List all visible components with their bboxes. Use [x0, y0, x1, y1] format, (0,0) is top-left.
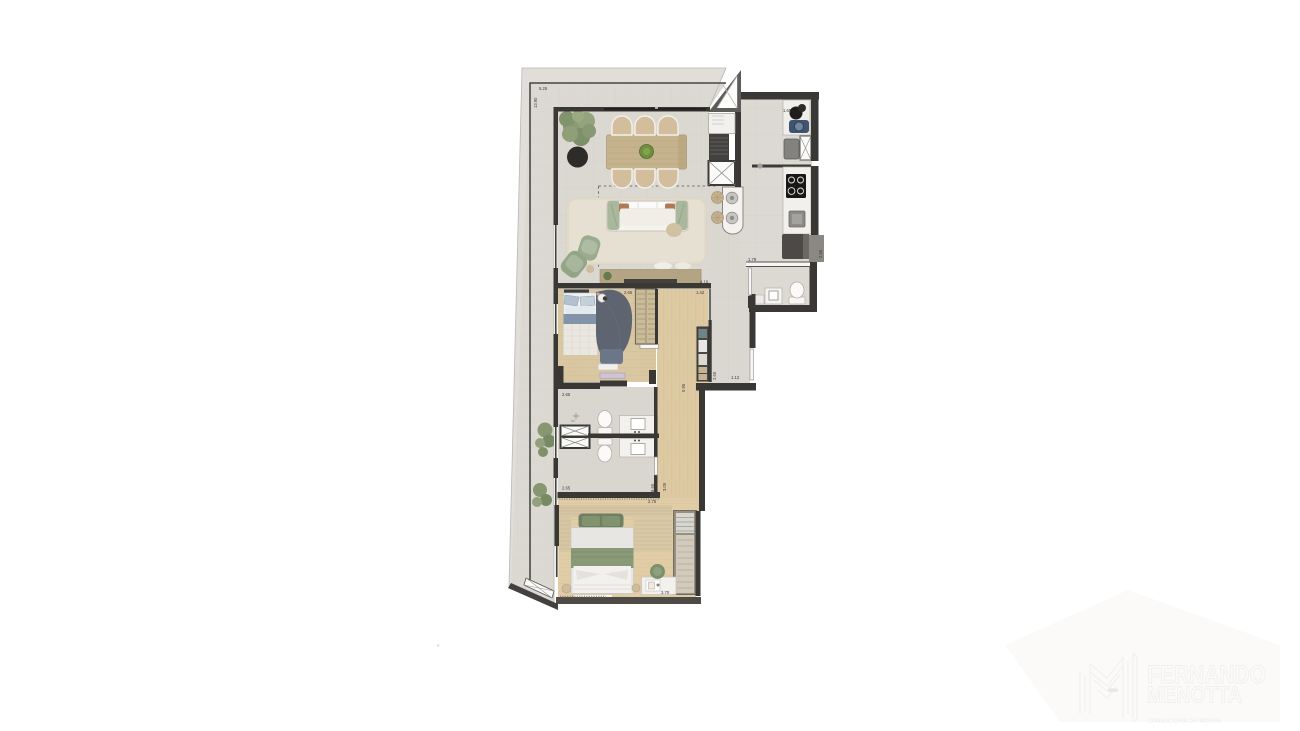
svg-text:2.65: 2.65: [624, 290, 633, 295]
svg-text:2.75: 2.75: [648, 499, 657, 504]
svg-text:13.90: 13.90: [533, 97, 538, 108]
svg-text:CONSULTORIA DE IMOVEIS: CONSULTORIA DE IMOVEIS: [1148, 719, 1221, 725]
svg-text:1.79: 1.79: [748, 257, 757, 262]
svg-text:2.65: 2.65: [712, 371, 717, 380]
svg-text:2.65: 2.65: [562, 486, 571, 491]
svg-text:4.10: 4.10: [700, 280, 709, 285]
svg-text:2.55: 2.55: [818, 249, 823, 258]
svg-text:1.65: 1.65: [783, 108, 792, 113]
svg-text:1.42: 1.42: [696, 290, 705, 295]
svg-text:0.95: 0.95: [681, 383, 686, 392]
svg-text:2.65: 2.65: [649, 373, 654, 382]
svg-text:5.25: 5.25: [539, 86, 548, 91]
svg-text:3.05: 3.05: [662, 482, 667, 491]
svg-text:1.12: 1.12: [731, 375, 740, 380]
svg-text:MENOTTA: MENOTTA: [1147, 682, 1242, 708]
svg-text:8.65: 8.65: [650, 483, 655, 492]
svg-text:2.65: 2.65: [562, 392, 571, 397]
svg-text:3.70: 3.70: [661, 590, 670, 595]
